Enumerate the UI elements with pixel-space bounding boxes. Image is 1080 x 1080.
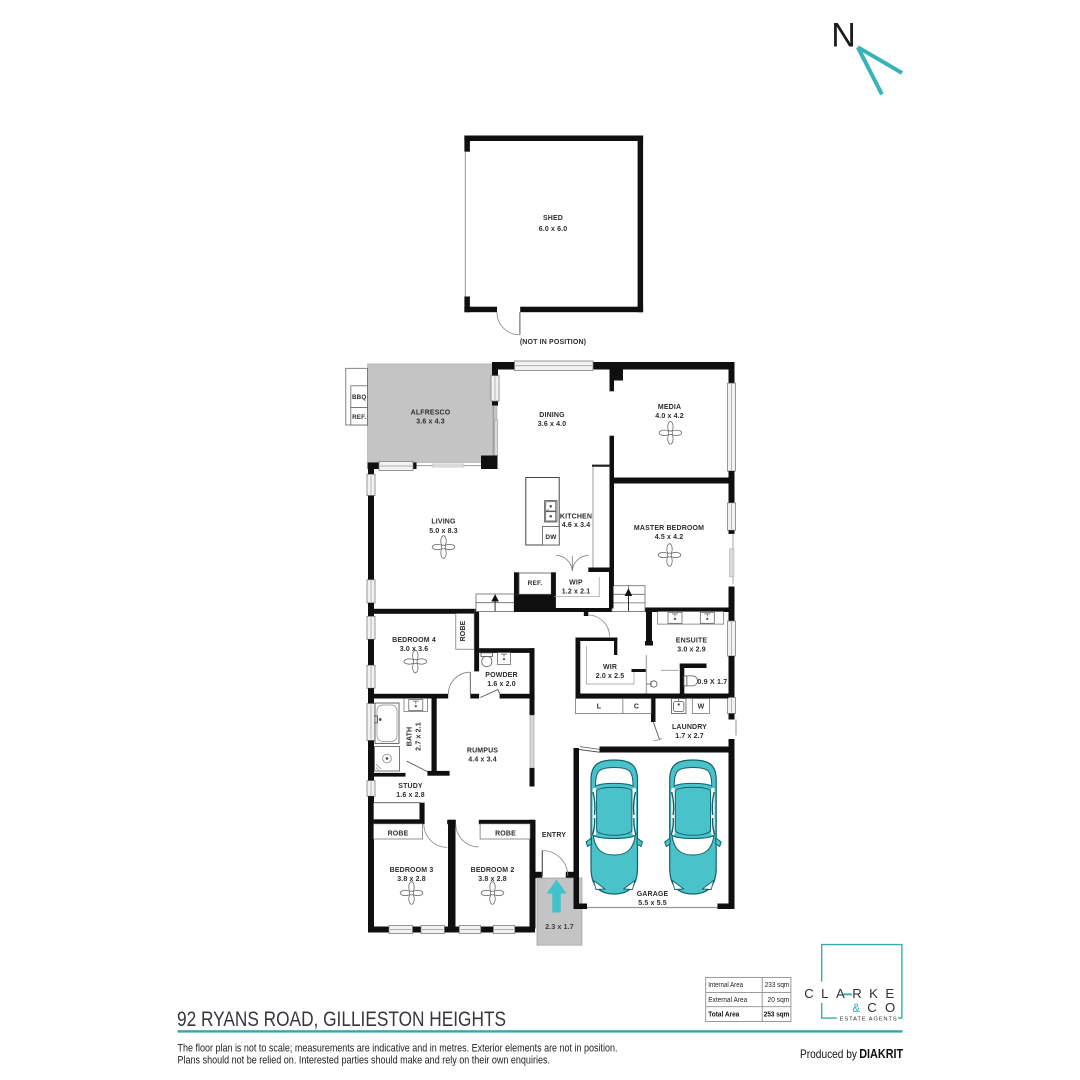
svg-text:ENTRY: ENTRY xyxy=(542,832,566,839)
svg-text:BBQ: BBQ xyxy=(352,394,366,401)
svg-text:DIAKRIT: DIAKRIT xyxy=(859,1047,903,1061)
svg-text:GARAGE: GARAGE xyxy=(637,891,669,898)
svg-text:Internal Area: Internal Area xyxy=(708,980,743,989)
svg-text:C: C xyxy=(634,704,639,711)
svg-text:5.0 x 8.3: 5.0 x 8.3 xyxy=(429,528,458,535)
svg-text:2.3 x 1.7: 2.3 x 1.7 xyxy=(545,924,574,931)
svg-text:4.5 x 4.2: 4.5 x 4.2 xyxy=(655,534,684,541)
svg-text:External Area: External Area xyxy=(708,995,748,1004)
svg-text:L: L xyxy=(597,704,602,711)
svg-text:3.6 x 4.0: 3.6 x 4.0 xyxy=(538,421,567,428)
svg-text:Produced by: Produced by xyxy=(800,1047,857,1061)
svg-text:ROBE: ROBE xyxy=(388,831,409,838)
svg-text:WIP: WIP xyxy=(569,580,583,587)
svg-text:253 sqm: 253 sqm xyxy=(764,1009,790,1018)
svg-text:STUDY: STUDY xyxy=(398,783,423,790)
svg-text:DINING: DINING xyxy=(539,412,565,419)
svg-text:N: N xyxy=(831,16,856,54)
svg-text:RUMPUS: RUMPUS xyxy=(467,748,498,755)
svg-text:Total Area: Total Area xyxy=(708,1009,740,1018)
svg-text:WIR: WIR xyxy=(603,664,617,671)
svg-text:233 sqm: 233 sqm xyxy=(765,980,790,989)
svg-text:ROBE: ROBE xyxy=(495,831,516,838)
svg-text:BEDROOM 3: BEDROOM 3 xyxy=(390,867,434,874)
svg-text:REF.: REF. xyxy=(352,414,366,421)
svg-text:LIVING: LIVING xyxy=(431,519,456,526)
svg-text:4.6 x 3.4: 4.6 x 3.4 xyxy=(562,522,591,529)
svg-text:(NOT IN POSITION): (NOT IN POSITION) xyxy=(520,339,586,346)
svg-text:6.0 x 6.0: 6.0 x 6.0 xyxy=(539,226,568,233)
svg-text:3.0 x 3.6: 3.0 x 3.6 xyxy=(400,646,429,653)
svg-text:20 sqm: 20 sqm xyxy=(768,995,790,1004)
svg-text:DW: DW xyxy=(545,534,557,541)
svg-text:5.5 x 5.5: 5.5 x 5.5 xyxy=(638,900,667,907)
svg-text:3.6 x 4.3: 3.6 x 4.3 xyxy=(416,419,445,426)
svg-text:2.0 x 2.5: 2.0 x 2.5 xyxy=(596,673,625,680)
svg-text:BATH: BATH xyxy=(407,727,414,747)
svg-text:ESTATE AGENTS: ESTATE AGENTS xyxy=(840,1017,897,1023)
svg-text:REF.: REF. xyxy=(528,580,543,587)
svg-text:The floor plan is not to scale: The floor plan is not to scale; measurem… xyxy=(178,1043,618,1055)
svg-text:3.0 x 2.9: 3.0 x 2.9 xyxy=(677,647,706,654)
svg-text:1.6 x 2.0: 1.6 x 2.0 xyxy=(487,681,516,688)
svg-text:4.4 x 3.4: 4.4 x 3.4 xyxy=(468,757,497,764)
svg-text:Plans should not be relied on.: Plans should not be relied on. Intereste… xyxy=(178,1055,551,1067)
svg-text:92 RYANS ROAD, GILLIESTON HEIG: 92 RYANS ROAD, GILLIESTON HEIGHTS xyxy=(177,1007,506,1031)
svg-text:1.7 x 2.7: 1.7 x 2.7 xyxy=(675,733,704,740)
svg-text:&: & xyxy=(852,1003,860,1015)
svg-text:ALFRESCO: ALFRESCO xyxy=(411,410,451,417)
svg-text:ENSUITE: ENSUITE xyxy=(676,638,708,645)
svg-text:BEDROOM 4: BEDROOM 4 xyxy=(392,637,436,644)
svg-text:1.2 x 2.1: 1.2 x 2.1 xyxy=(562,589,591,596)
svg-text:SHED: SHED xyxy=(543,215,563,222)
svg-text:W: W xyxy=(698,704,705,711)
svg-text:1.6 x 2.8: 1.6 x 2.8 xyxy=(396,792,425,799)
svg-text:ROBE: ROBE xyxy=(460,620,467,641)
svg-text:2.7 x 2.1: 2.7 x 2.1 xyxy=(416,722,423,751)
svg-text:POWDER: POWDER xyxy=(485,672,517,679)
svg-text:LAUNDRY: LAUNDRY xyxy=(672,724,707,731)
svg-text:0.9 X 1.7: 0.9 X 1.7 xyxy=(697,677,727,686)
svg-text:MEDIA: MEDIA xyxy=(658,404,681,411)
svg-text:MASTER BEDROOM: MASTER BEDROOM xyxy=(634,525,704,532)
svg-text:BEDROOM 2: BEDROOM 2 xyxy=(471,867,515,874)
svg-text:4.0 x 4.2: 4.0 x 4.2 xyxy=(655,413,684,420)
svg-text:KITCHEN: KITCHEN xyxy=(560,514,592,521)
